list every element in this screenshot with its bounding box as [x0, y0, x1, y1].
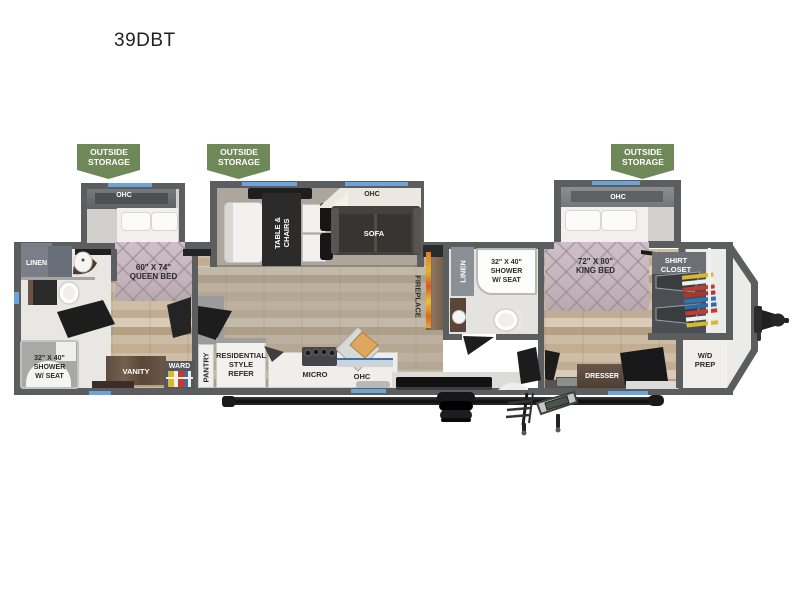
svg-text:OUTSIDE: OUTSIDE — [220, 147, 258, 157]
svg-text:STORAGE: STORAGE — [88, 157, 130, 167]
svg-text:STORAGE: STORAGE — [218, 157, 260, 167]
svg-text:OUTSIDE: OUTSIDE — [90, 147, 128, 157]
svg-text:OUTSIDE: OUTSIDE — [624, 147, 662, 157]
svg-text:STORAGE: STORAGE — [622, 157, 664, 167]
